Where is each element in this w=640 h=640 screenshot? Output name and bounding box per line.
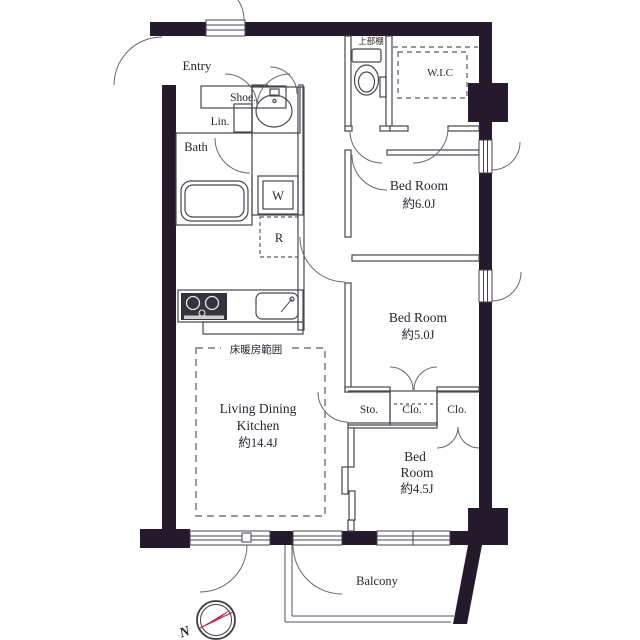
floor-heating-label: 床暖房範囲 xyxy=(230,343,283,356)
stove-grill xyxy=(184,316,224,320)
fridge-label: R xyxy=(275,231,284,245)
wall-corridor-right-upper xyxy=(345,150,351,237)
ldk-size: 約14.4J xyxy=(238,435,277,450)
closet-middle-label: Clo. xyxy=(402,404,422,416)
wall-right-lower xyxy=(479,302,492,508)
upper-shelf-label: 上部棚 xyxy=(358,36,384,47)
bath-door-gap xyxy=(247,137,254,174)
bedroom1-size: 約6.0J xyxy=(403,196,436,211)
shoe-cabinet-label: Shoe. xyxy=(230,92,256,104)
window-bedroom2 xyxy=(479,270,492,302)
bedroom3-label-line2: Room xyxy=(400,465,434,480)
wall-wic-bottom-a xyxy=(390,126,408,131)
bedroom1-label: Bed Room xyxy=(390,178,449,193)
wall-wc-bottom-b xyxy=(380,126,390,131)
wall-wc-left xyxy=(345,36,351,130)
wall-bottom-b xyxy=(342,531,377,545)
bedroom2-size: 約5.0J xyxy=(402,327,435,342)
wall-bedroom1-top xyxy=(387,150,479,155)
ldk-label-line1: Living Dining xyxy=(220,401,297,416)
bedroom3-label-line1: Bed xyxy=(404,449,426,464)
ldk-label-line2: Kitchen xyxy=(237,418,280,433)
wall-bedroom3-left-a xyxy=(348,428,354,467)
pillar-top-right xyxy=(468,83,508,122)
wall-left xyxy=(162,85,176,531)
bedroom2-label: Bed Room xyxy=(389,310,448,325)
closet-right-label: Clo. xyxy=(447,404,467,416)
wall-top-left xyxy=(150,22,208,36)
pillar-bottom-right xyxy=(468,508,508,545)
entrance-door-frame xyxy=(206,20,245,36)
entry-label: Entry xyxy=(183,58,212,73)
wall-wic-bottom-b xyxy=(448,126,479,131)
floorplan-drawing: Entry Shoe. Lin. Bath W R 上部棚 W.I.C Bed … xyxy=(0,0,640,640)
wall-right-middle xyxy=(479,173,492,270)
sliding-door-leaf-b xyxy=(349,491,355,520)
wall-bottom-a xyxy=(270,531,293,545)
bath-label: Bath xyxy=(184,140,208,154)
balcony-label: Balcony xyxy=(356,574,398,588)
bedroom3-size: 約4.5J xyxy=(401,481,434,496)
wic-label: W.I.C xyxy=(427,67,453,79)
window-a-handle xyxy=(242,533,251,542)
wall-corridor-right-lower xyxy=(345,283,351,392)
wall-bottom-left-block xyxy=(140,529,190,548)
wall-bedroom1-2-divider xyxy=(352,255,479,261)
floorplan-canvas: Entry Shoe. Lin. Bath W R 上部棚 W.I.C Bed … xyxy=(0,0,640,640)
window-ldk-door xyxy=(293,531,342,545)
wall-wc-bottom-a xyxy=(345,126,352,131)
window-bedroom1 xyxy=(479,140,492,173)
storage-label: Sto. xyxy=(360,404,378,416)
window-ldk-left xyxy=(190,531,270,545)
washer-label: W xyxy=(272,189,284,203)
linen-label: Lin. xyxy=(211,116,230,128)
sliding-door-leaf-a xyxy=(342,467,348,494)
wall-wc-wic-divider xyxy=(386,36,392,130)
wall-top-main xyxy=(243,22,492,36)
wall-bedroom3-left-b xyxy=(348,520,354,531)
